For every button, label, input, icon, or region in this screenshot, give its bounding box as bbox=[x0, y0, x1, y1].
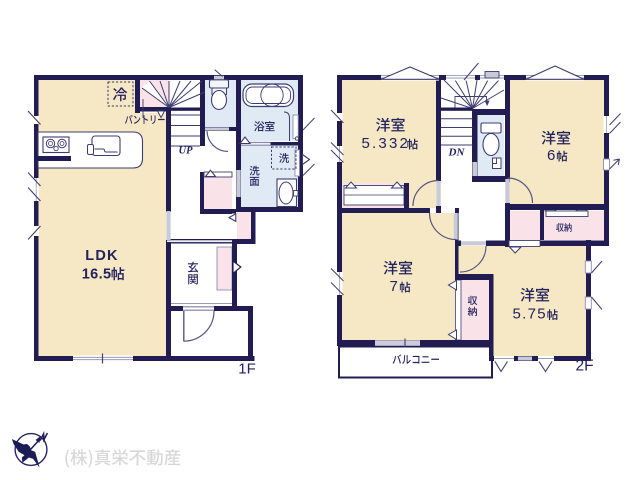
svg-text:2F: 2F bbox=[575, 358, 593, 375]
svg-text:7: 7 bbox=[390, 278, 398, 295]
svg-text:5.75: 5.75 bbox=[513, 306, 547, 323]
svg-text:6: 6 bbox=[547, 147, 555, 164]
svg-text:LDK: LDK bbox=[85, 248, 118, 264]
svg-text:DN: DN bbox=[448, 147, 466, 159]
svg-text:1F: 1F bbox=[238, 361, 256, 378]
svg-text:UP: UP bbox=[179, 146, 194, 157]
svg-text:5.332: 5.332 bbox=[362, 135, 411, 152]
svg-text:16.5: 16.5 bbox=[82, 267, 112, 283]
